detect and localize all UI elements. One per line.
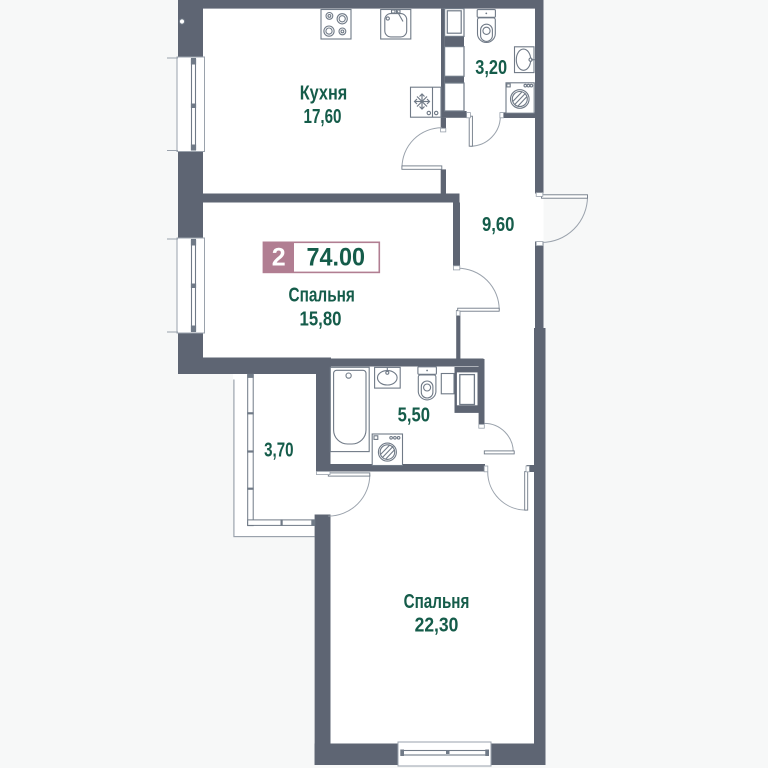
svg-text:Спальня: Спальня bbox=[404, 591, 470, 613]
svg-text:22,30: 22,30 bbox=[415, 614, 459, 636]
svg-text:Кухня: Кухня bbox=[300, 82, 348, 104]
svg-text:74.00: 74.00 bbox=[307, 244, 366, 272]
svg-text:3,20: 3,20 bbox=[475, 57, 507, 79]
svg-text:Спальня: Спальня bbox=[289, 285, 355, 307]
svg-text:17,60: 17,60 bbox=[304, 106, 342, 128]
svg-text:9,60: 9,60 bbox=[482, 214, 515, 236]
svg-text:15,80: 15,80 bbox=[300, 308, 342, 330]
svg-text:3,70: 3,70 bbox=[264, 440, 293, 462]
svg-text:2: 2 bbox=[272, 244, 286, 272]
svg-text:5,50: 5,50 bbox=[398, 405, 430, 427]
